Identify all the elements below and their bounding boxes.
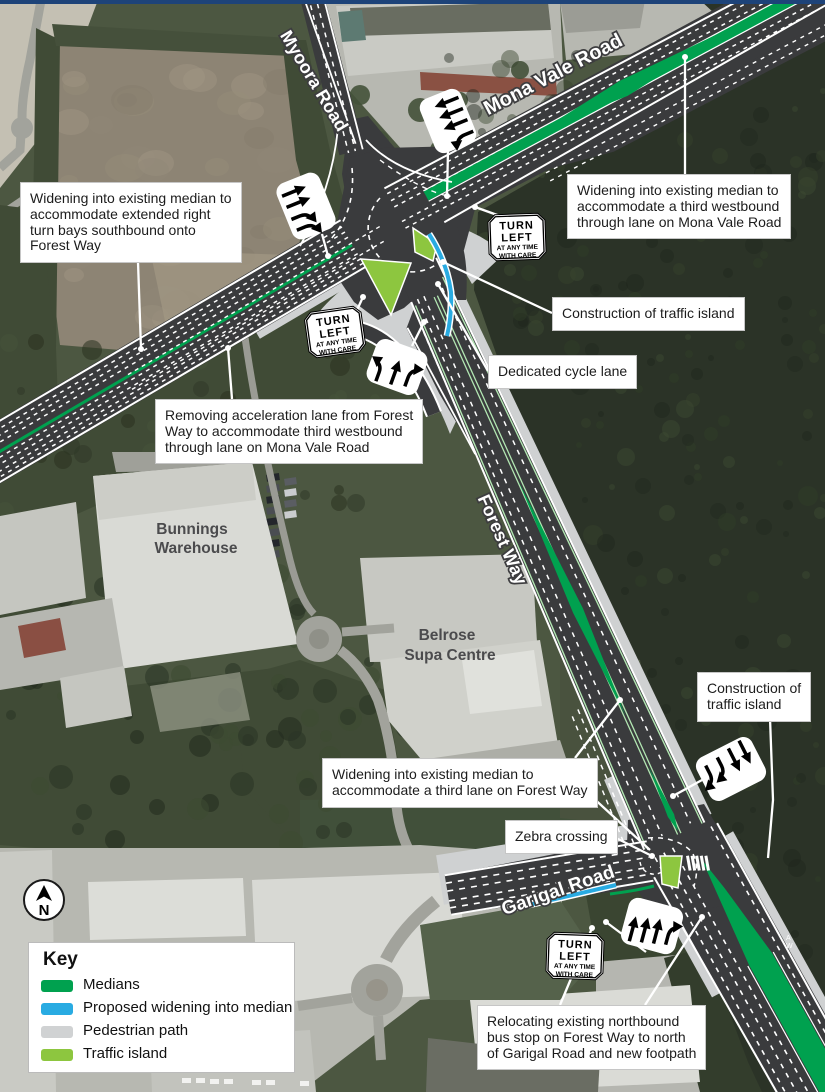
- svg-text:A: A: [786, 935, 791, 942]
- svg-text:WITH CARE: WITH CARE: [499, 252, 537, 260]
- svg-text:W: W: [786, 943, 793, 950]
- svg-text:Bunnings: Bunnings: [156, 521, 227, 538]
- svg-text:Belrose: Belrose: [419, 627, 476, 644]
- svg-text:LEFT: LEFT: [559, 950, 591, 963]
- svg-text:AT ANY TIME: AT ANY TIME: [497, 244, 539, 252]
- svg-text:AT ANY TIME: AT ANY TIME: [554, 963, 596, 971]
- svg-text:Supa Centre: Supa Centre: [404, 647, 496, 664]
- svg-text:LEFT: LEFT: [501, 231, 533, 244]
- svg-text:N: N: [39, 902, 50, 919]
- svg-text:WITH CARE: WITH CARE: [556, 971, 594, 979]
- svg-text:Warehouse: Warehouse: [155, 540, 238, 557]
